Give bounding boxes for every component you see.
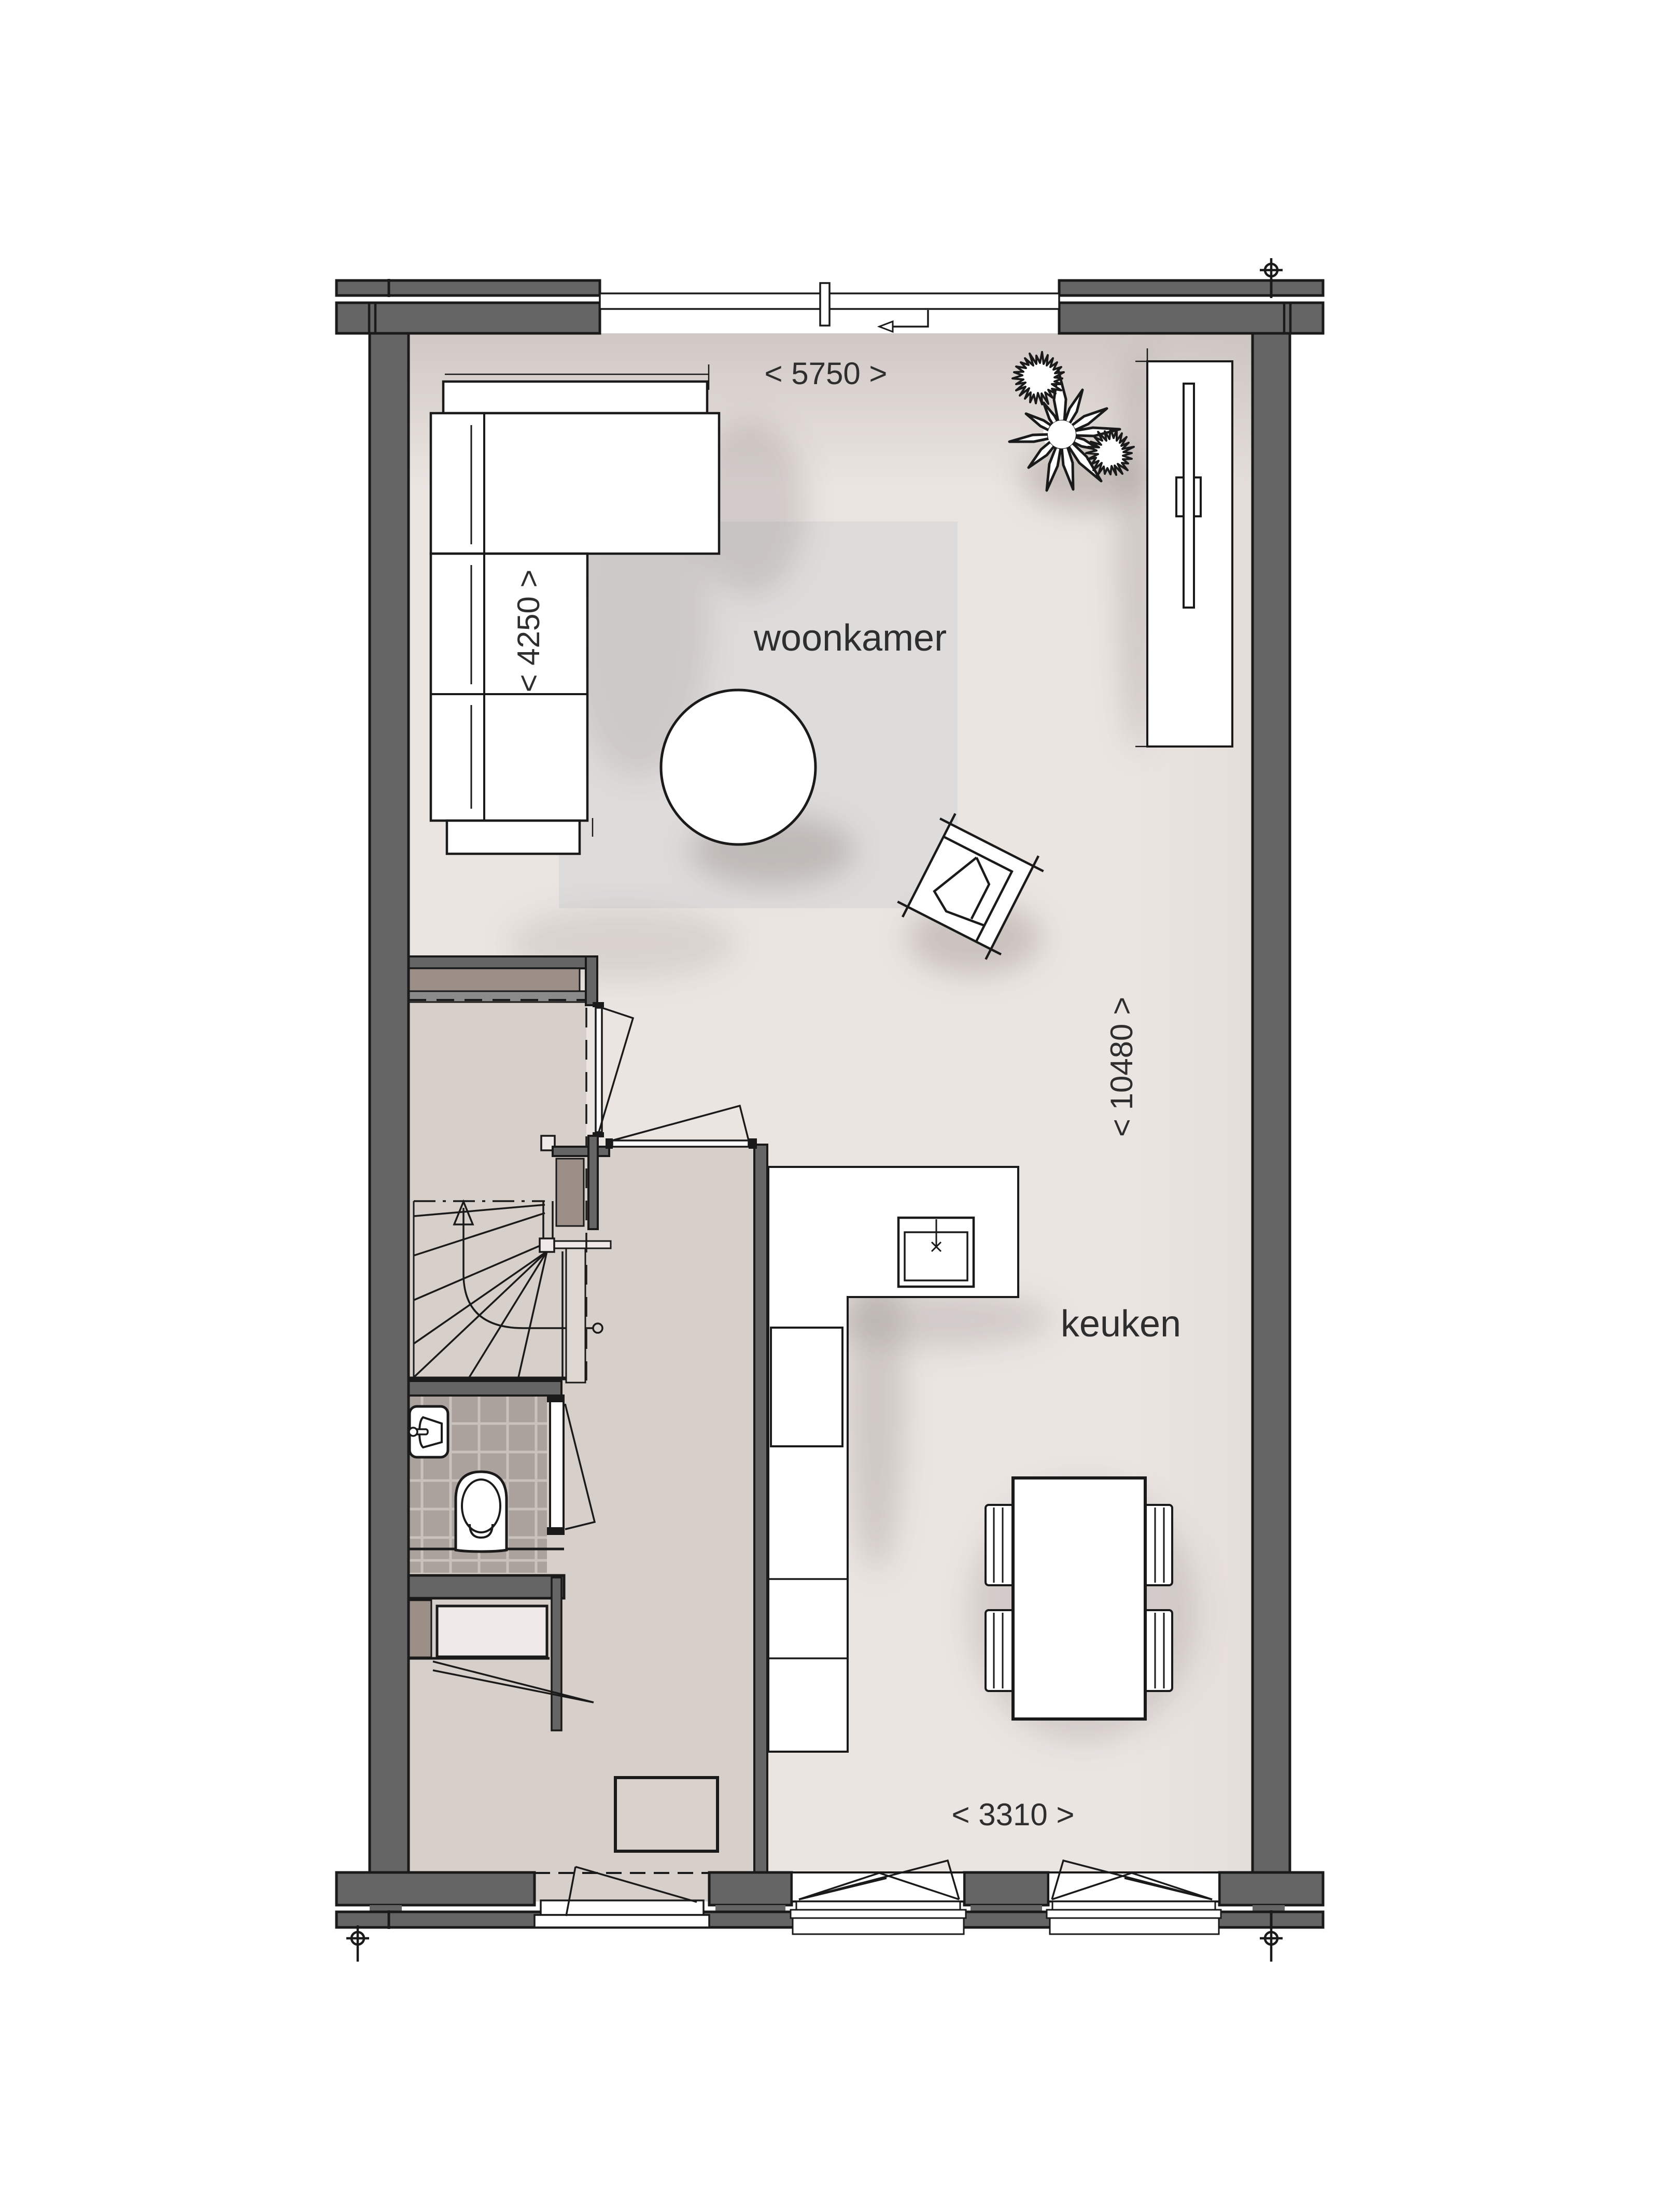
- svg-text:keuken: keuken: [1061, 1303, 1181, 1345]
- svg-text:< 4250 >: < 4250 >: [511, 570, 546, 693]
- svg-text:< 3310 >: < 3310 >: [952, 1797, 1075, 1832]
- svg-text:< 10480 >: < 10480 >: [1104, 997, 1139, 1137]
- svg-text:woonkamer: woonkamer: [753, 617, 947, 659]
- svg-text:< 5750 >: < 5750 >: [765, 356, 888, 391]
